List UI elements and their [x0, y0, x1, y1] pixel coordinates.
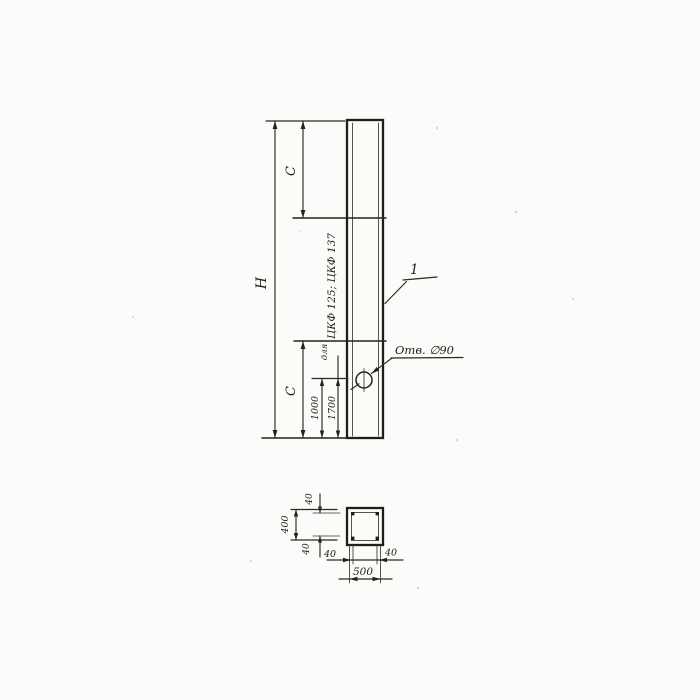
dimension-500: 500	[339, 566, 392, 581]
arrowhead-down	[336, 431, 340, 439]
speck	[456, 439, 459, 442]
dim-label-40-top: 40	[305, 493, 315, 506]
part-callout: 1	[385, 262, 437, 304]
dimension-H: Н	[254, 121, 277, 438]
arrowhead-up	[294, 510, 298, 517]
arrowhead-up	[318, 536, 322, 543]
part-leader-line	[385, 282, 407, 304]
dimension-covers-horizontal: 40 40	[323, 548, 403, 563]
reinforcement-cage	[352, 513, 379, 541]
speck	[515, 211, 518, 214]
note-line2: ЦКФ 125; ЦКФ 137	[327, 232, 338, 339]
hole-callout: Отв. ∅90	[351, 343, 463, 392]
arrowhead-right	[373, 577, 381, 581]
arrowhead-down	[301, 210, 306, 218]
dimension-400: 400	[280, 510, 337, 541]
rebar-top-right	[376, 512, 379, 515]
dimension-1700: 1700	[327, 356, 340, 438]
paper-specks	[132, 127, 574, 589]
scanned-drawing-page: Н С С 1000 1700	[0, 0, 700, 700]
dimension-C-bottom: С	[284, 341, 305, 438]
hole-label-underline	[391, 358, 463, 359]
part-label: 1	[410, 262, 419, 278]
note-line1: для	[320, 343, 330, 360]
dim-label-40-right: 40	[384, 548, 397, 559]
rebar-bottom-left	[351, 537, 354, 540]
arrowhead-down	[294, 533, 298, 540]
arrowhead-down	[273, 430, 278, 438]
column-outline	[347, 120, 383, 438]
speck	[436, 127, 438, 129]
arrowhead-down	[320, 431, 324, 439]
speck	[417, 587, 419, 589]
dim-label-C-bottom: С	[284, 386, 299, 396]
dim-label-40-left: 40	[323, 549, 336, 560]
dim-label-C-top: С	[284, 166, 299, 176]
arrowhead-up	[273, 121, 278, 129]
hole-label: Отв. ∅90	[395, 343, 454, 357]
speck	[132, 316, 134, 318]
dim-label-1700: 1700	[327, 396, 338, 420]
arrowhead-up	[301, 341, 306, 349]
dim-label-H: Н	[254, 276, 270, 290]
part-label-underline	[403, 277, 437, 280]
rebar-bottom-right	[376, 537, 379, 540]
speck	[299, 230, 301, 232]
speck	[572, 298, 574, 300]
arrowhead-up	[320, 379, 324, 387]
dim-label-1000: 1000	[310, 396, 321, 420]
elevation-view: Н С С 1000 1700	[254, 120, 463, 438]
cross-section-view: 400 40 40 40 40	[280, 493, 403, 583]
dimension-C-top: С	[284, 121, 305, 218]
dimension-1000: 1000	[310, 379, 324, 439]
dim-label-400: 400	[280, 515, 291, 534]
dim-label-500: 500	[353, 566, 373, 578]
speck	[250, 560, 252, 562]
rebar-top-left	[351, 512, 354, 515]
technical-drawing: Н С С 1000 1700	[0, 0, 700, 700]
section-outline	[347, 508, 383, 545]
arrowhead-down	[301, 430, 306, 438]
dim-label-40-bottom: 40	[302, 543, 312, 556]
arrowhead-up	[336, 379, 340, 387]
arrowhead-up	[301, 121, 306, 129]
